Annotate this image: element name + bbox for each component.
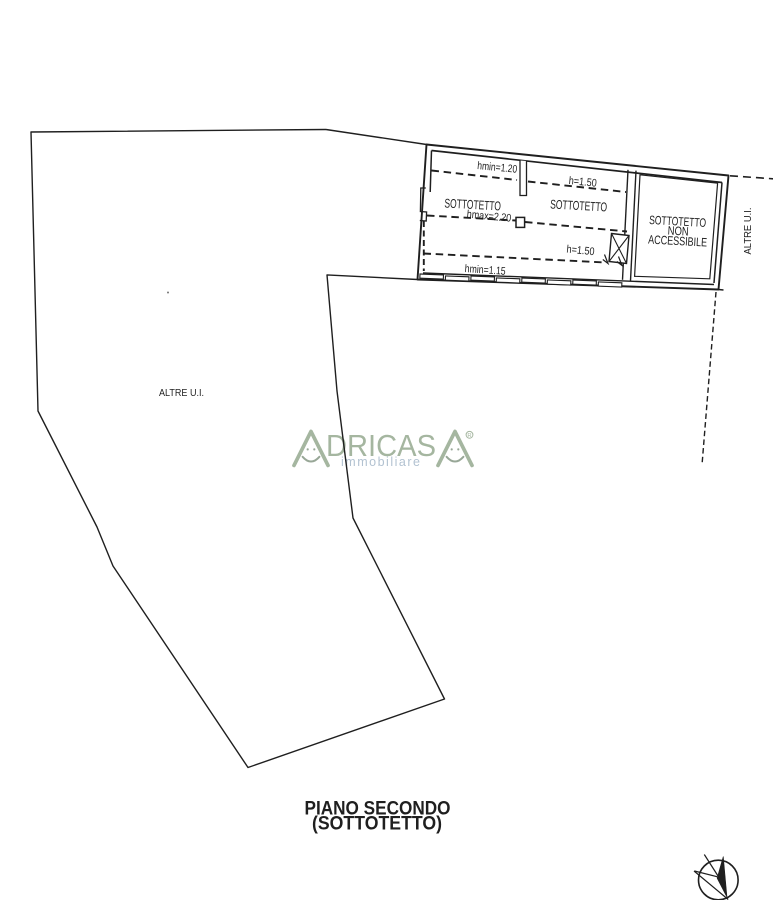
- svg-text:SOTTOTETTO: SOTTOTETTO: [550, 197, 608, 215]
- svg-text:ALTRE U.I.: ALTRE U.I.: [743, 208, 754, 255]
- svg-text:ALTRE U.I.: ALTRE U.I.: [159, 388, 204, 399]
- svg-text:R: R: [467, 433, 471, 439]
- svg-text:immobiliare: immobiliare: [341, 455, 422, 469]
- svg-text:(SOTTOTETTO): (SOTTOTETTO): [312, 814, 442, 835]
